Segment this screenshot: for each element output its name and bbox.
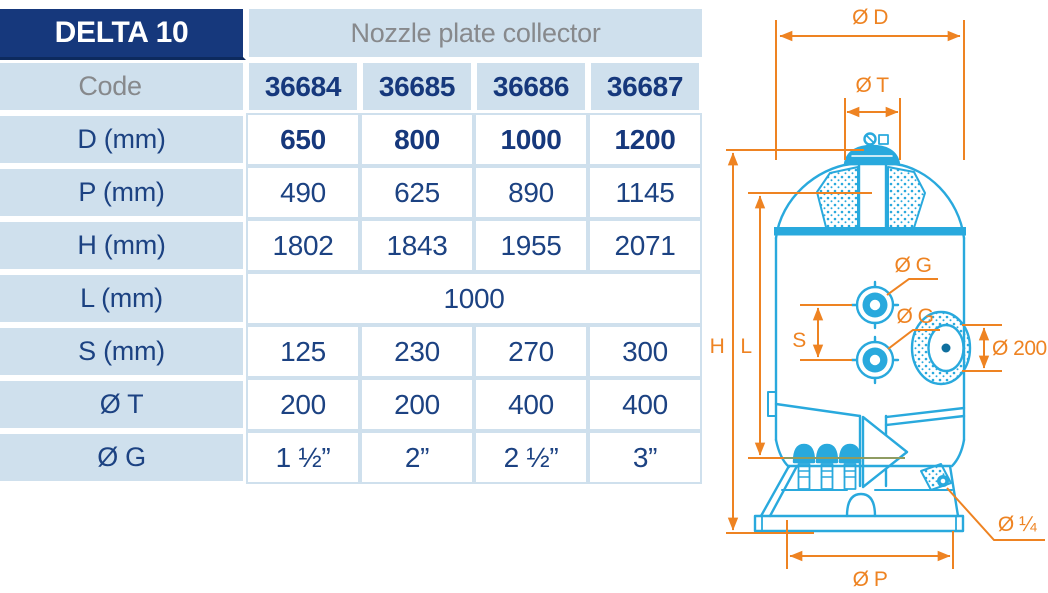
cell-value: 300 [588,325,702,378]
table-row-l: L (mm) 1000 [0,272,702,325]
label-spacing-s: S [792,329,806,352]
label-port-g-top: Ø G [894,254,931,277]
label-diameter-t: Ø T [855,74,889,97]
cell-value: 200 [246,378,360,431]
drain-plug [921,464,951,490]
cell-value: 1000 [246,272,702,325]
table-row-d: D (mm) 650 800 1000 1200 [0,113,702,166]
cell-value: 400 [588,378,702,431]
row-label: Ø G [0,431,246,484]
row-label: Code [0,60,246,113]
cell-value: 1802 [246,219,360,272]
row-label: Ø T [0,378,246,431]
cell-value: 800 [360,113,474,166]
product-title: Nozzle plate collector [246,9,702,60]
label-drain-quarter: Ø ¼ [998,513,1037,536]
cell-value: 2071 [588,219,702,272]
table-row-diam-g: Ø G 1 ½” 2” 2 ½” 3” [0,431,702,484]
row-label: L (mm) [0,272,246,325]
table-row-p: P (mm) 490 625 890 1145 [0,166,702,219]
filter-technical-drawing: Ø D Ø T H L S Ø G Ø G Ø 200 Ø ¼ Ø P [700,0,1048,593]
table-row-diam-t: Ø T 200 200 400 400 [0,378,702,431]
cell-value: 625 [360,166,474,219]
cell-value: 1145 [588,166,702,219]
label-port-g-bottom: Ø G [896,305,933,328]
port-g-top [852,282,898,328]
code-value: 36684 [246,60,360,113]
row-label: P (mm) [0,166,246,219]
cell-value: 2 ½” [474,431,588,484]
cell-value: 1200 [588,113,702,166]
code-value: 36687 [588,60,702,113]
row-label: H (mm) [0,219,246,272]
catalog-page: DELTA 10 Nozzle plate collector Code 366… [0,0,1048,593]
label-height-h: H [710,335,725,358]
row-label: S (mm) [0,325,246,378]
cell-value: 3” [588,431,702,484]
table-header-row: DELTA 10 Nozzle plate collector [0,9,702,60]
cell-value: 650 [246,113,360,166]
model-name: DELTA 10 [0,9,246,60]
cell-value: 1000 [474,113,588,166]
cell-value: 1843 [360,219,474,272]
cell-value: 890 [474,166,588,219]
cell-value: 490 [246,166,360,219]
spec-table: DELTA 10 Nozzle plate collector Code 366… [0,9,702,484]
code-value: 36685 [360,60,474,113]
row-label: D (mm) [0,113,246,166]
cell-value: 2” [360,431,474,484]
cell-value: 270 [474,325,588,378]
cell-value: 1955 [474,219,588,272]
table-row-h: H (mm) 1802 1843 1955 2071 [0,219,702,272]
cell-value: 400 [474,378,588,431]
cell-value: 200 [360,378,474,431]
cell-value: 125 [246,325,360,378]
table-row-s: S (mm) 125 230 270 300 [0,325,702,378]
label-length-l: L [740,335,751,358]
label-diameter-p: Ø P [853,568,888,591]
code-value: 36686 [474,60,588,113]
label-diameter-d: Ø D [852,6,888,29]
code-row: Code 36684 36685 36686 36687 [0,60,702,113]
cell-value: 230 [360,325,474,378]
port-g-bottom [852,337,898,383]
cell-value: 1 ½” [246,431,360,484]
label-flange-200: Ø 200 [992,337,1047,360]
